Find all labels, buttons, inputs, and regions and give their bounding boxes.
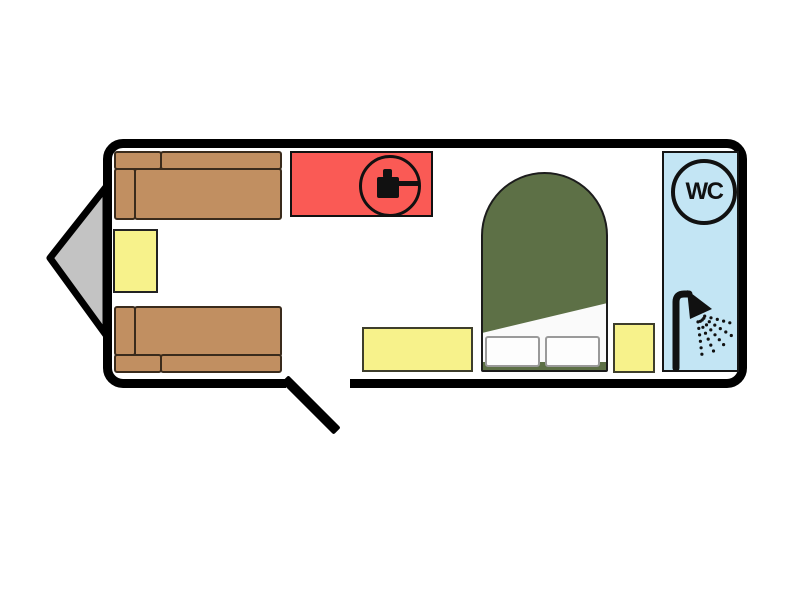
pillow-left (485, 336, 540, 367)
sofa-bottom-seat (134, 306, 282, 357)
shower-icon (664, 288, 739, 373)
cooking-pot-handle (398, 181, 419, 186)
sofa-bottom-backrest-cushion-left (114, 354, 162, 373)
double-bed (481, 172, 608, 372)
cooking-pot-icon (377, 177, 399, 198)
pillow-right (545, 336, 600, 367)
wc-roundel-icon: WC (671, 159, 737, 225)
bedside-unit-left (362, 327, 473, 372)
sofa-bottom-backrest-cushion-right (160, 354, 282, 373)
caravan-floor-plan: WC (0, 0, 800, 600)
cooking-pot-lid-knob (383, 169, 392, 178)
sofa-top-seat (134, 168, 282, 220)
bedside-unit-right (613, 323, 655, 373)
wc-label: WC (686, 178, 723, 206)
lounge-side-table (113, 229, 158, 293)
sofa-bottom-armrest (114, 306, 136, 356)
sofa-top-armrest (114, 168, 136, 220)
